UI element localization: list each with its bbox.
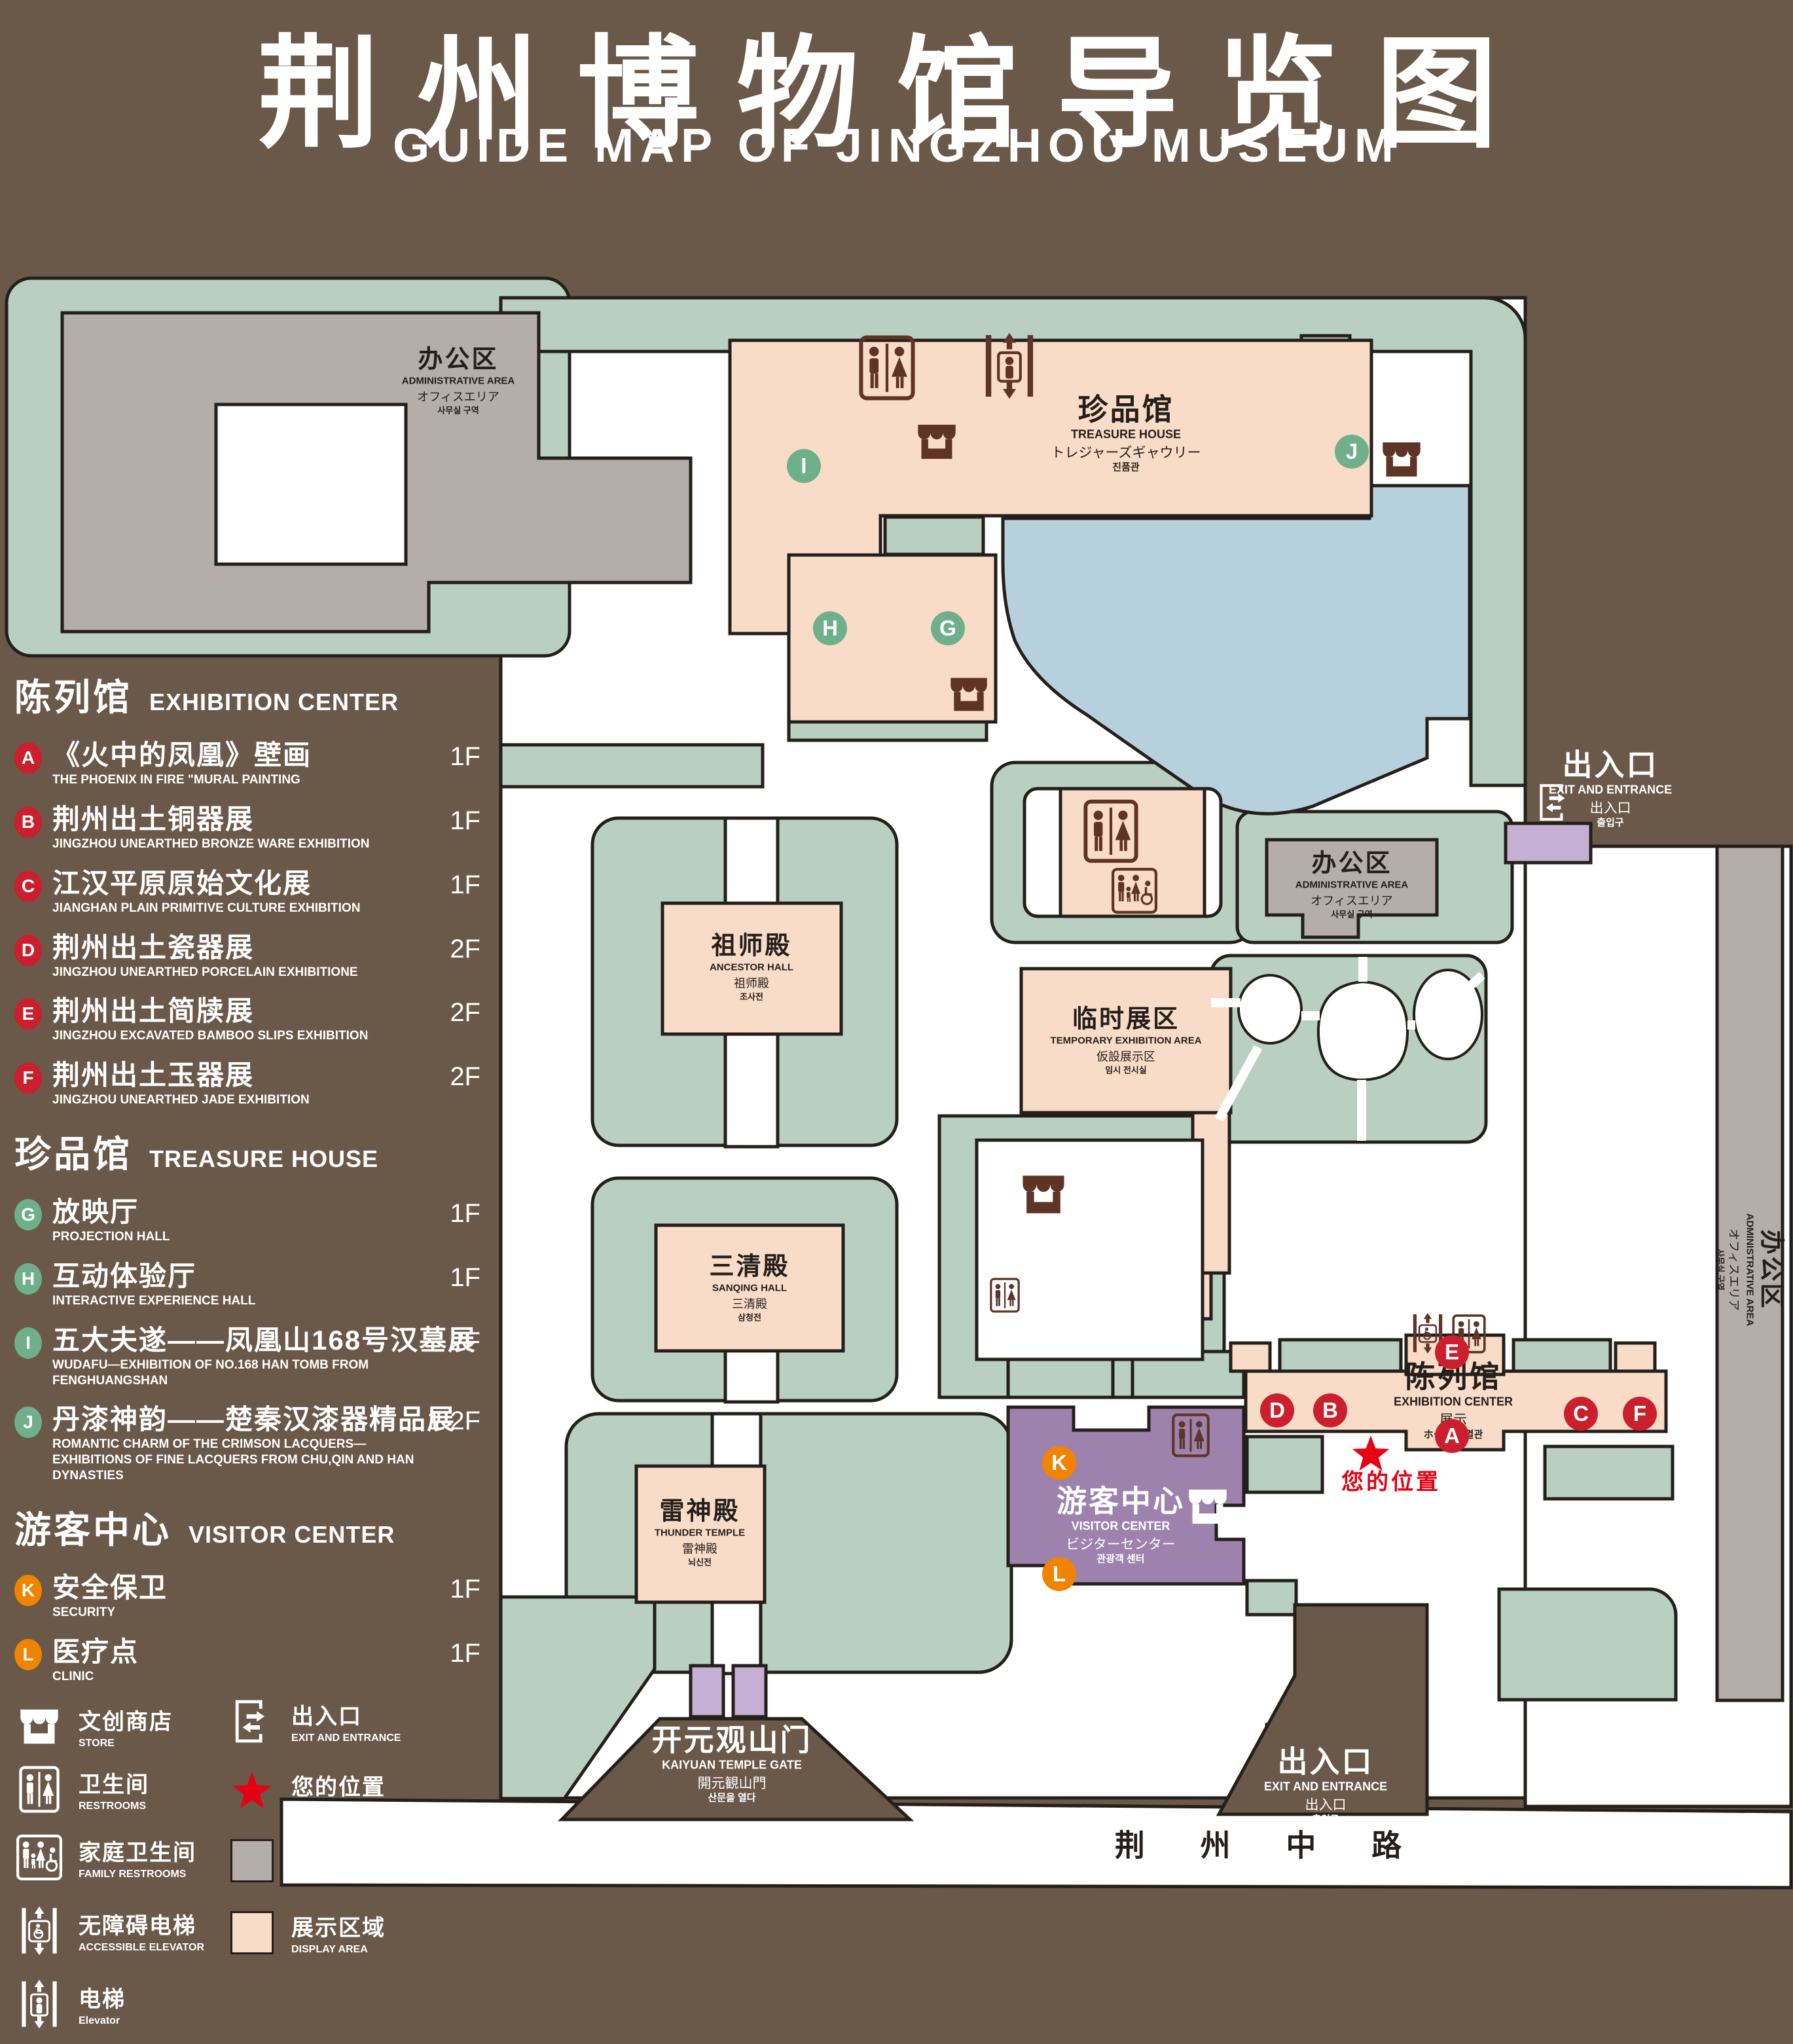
floor-G: 1F [450,1199,480,1228]
path-thunder-top [712,1414,761,1466]
legend-symbol-restrooms: 卫生间RESTROOMS [14,1766,149,1813]
legend-section-visitor-center: 游客中心VISITOR CENTER [14,1501,499,1554]
legend-symbol-exit: 出入口EXIT AND ENTRANCE [227,1698,401,1744]
legend: 陈列馆EXHIBITION CENTER A 《火中的凤凰》壁画THE PHOE… [14,651,499,2044]
restroom-icon [14,1766,64,1813]
family-restroom-icon [1112,868,1157,914]
legend-item-F: F 荆州出土玉器展JINGZHOU UNEARTHED JADE EXHIBIT… [14,1061,499,1108]
floor-I: 2F [450,1327,480,1357]
floor-A: 1F [450,742,480,772]
lawn-star-left [1247,1437,1322,1492]
path-thunder-bottom [712,1602,761,1674]
floor-E: 2F [450,998,480,1028]
label-road: 荆 州 中 路 [1115,1829,1425,1863]
floor-B: 1F [450,806,480,836]
path-sanqing-bottom [725,1351,778,1402]
badge-G: G [14,1199,42,1230]
legend-symbol-office-area: 办公区域OFFICE AREA [227,1838,386,1884]
lawn-band-bottom [501,745,763,787]
badge-F: F [14,1062,42,1094]
badge-J: J [14,1407,42,1438]
floor-D: 2F [450,935,480,964]
legend-item-K: K 安全保卫SECURITY 1F [14,1573,499,1621]
map-marker-H: H [813,611,847,645]
display-swatch [227,1911,277,1954]
exit-icon [227,1698,277,1744]
restroom-icon [1172,1412,1210,1458]
lawn-below-gh [789,722,987,740]
floor-F: 2F [450,1062,480,1092]
legend-item-H: H 互动体验厅INTERACTIVE EXPERIENCE HALL 1F [14,1262,499,1309]
restroom-icon [859,334,915,402]
legend-section-treasure-house: 珍品馆TREASURE HOUSE [14,1125,499,1178]
gate-pillar-right [733,1666,766,1717]
legend-symbol-elevator: 电梯Elevator [14,1979,126,2030]
restroom-icon [990,1276,1020,1314]
map-marker-E: E [1435,1335,1469,1369]
label-ancestor-hall: 祖师殿ANCESTOR HALL 祖师殿조사전 [710,933,793,1001]
map-marker-L: L [1042,1557,1076,1591]
label-exit-bottom-right: 出入口EXIT AND ENTRANCE 出入口출입구 [1264,1746,1387,1826]
badge-D: D [14,935,42,966]
elevator-icon [14,1979,64,2030]
map-marker-K: K [1042,1446,1076,1480]
location-star-icon [227,1771,277,1813]
store-icon [1380,440,1423,479]
label-admin-top-left: 办公区ADMINISTRATIVE AREA オフィスエリア사무실 구역 [402,346,515,415]
floor-L: 1F [450,1639,480,1668]
store-icon [915,422,958,461]
accessible-elevator-icon [14,1905,64,1956]
restroom-icon [1083,798,1138,864]
legend-item-E: E 荆州出土简牍展JINGZHOU EXCAVATED BAMBOO SLIPS… [14,997,499,1044]
building-exhibition-stub-left [1231,1343,1270,1371]
legend-item-I: I 五大夫遂——凤凰山168号汉墓展WUDAFU—EXHIBITION OF N… [14,1326,499,1389]
courtyard-admin-top-left [216,404,406,564]
legend-item-B: B 荆州出土铜器展JINGZHOU UNEARTHED BRONZE WARE … [14,805,499,852]
map-marker-B: B [1313,1393,1347,1427]
pond-center [1318,982,1407,1080]
badge-H: H [14,1263,42,1295]
lawn-right-lower [1499,1589,1676,1700]
badge-E: E [14,998,42,1030]
legend-symbol-family-restrooms: 家庭卫生间FAMILY RESTROOMS [14,1835,196,1880]
path-ancestor-bottom [725,1034,778,1147]
legend-symbols: 文创商店STORE 出入口EXIT AND ENTRANCE 卫生间RESTRO… [14,1704,499,2044]
elevator-icon [982,331,1037,401]
map-marker-C: C [1564,1397,1598,1431]
lawn-treasure-slot [885,517,983,554]
lawn-exhibition-notch-right [1513,1340,1610,1371]
floor-J: 1-2F [427,1407,480,1436]
family-restroom-icon [14,1835,64,1880]
your-location-star-icon [1350,1435,1391,1475]
legend-symbol-store: 文创商店STORE [14,1704,173,1749]
office-swatch [227,1839,277,1882]
badge-C: C [14,870,42,902]
store-icon [1186,1487,1229,1526]
store-icon [1020,1173,1067,1216]
floor-C: 1F [450,870,480,900]
legend-symbol-accessible-elevator: 无障碍电梯ACCESSIBLE ELEVATOR [14,1905,204,1956]
map-marker-J: J [1335,435,1369,469]
store-icon [14,1707,64,1746]
legend-item-A: A 《火中的凤凰》壁画THE PHOENIX IN FIRE "MURAL PA… [14,741,499,788]
label-sanqing-hall: 三清殿SANQING HALL 三清殿삼청전 [709,1253,789,1322]
legend-item-G: G 放映厅PROJECTION HALL 1F [14,1198,499,1245]
legend-item-L: L 医疗点CLINIC 1F [14,1638,499,1685]
label-thunder-temple: 雷神殿THUNDER TEMPLE 雷神殿뇌신전 [655,1498,745,1567]
road-jingzhou-middle [281,1799,1791,1888]
map-marker-A: A [1435,1419,1469,1453]
legend-symbol-your-location: 您的位置YOUR LOCATION [227,1769,386,1815]
label-admin-middle: 办公区ADMINISTRATIVE AREA オフィスエリア사무실 구역 [1295,850,1409,919]
map-marker-I: I [787,449,821,483]
label-visitor-center: 游客中心VISITOR CENTER ビジターセンター관광객 센터 [1057,1485,1185,1566]
map-marker-D: D [1260,1393,1294,1427]
label-kaiyuan-gate: 开元观山门KAIYUAN TEMPLE GATE 開元観山門산문을 열다 [652,1724,812,1804]
badge-K: K [14,1575,42,1606]
legend-symbol-display-area: 展示区域DISPLAY AREA [227,1910,386,1956]
legend-item-J: J 丹漆神韵——楚秦汉漆器精品展ROMANTIC CHARM OF THE CR… [14,1405,499,1483]
courtyard-temporary [977,1140,1203,1359]
floor-K: 1F [450,1575,480,1604]
building-exhibition-stub-right [1616,1343,1655,1371]
map-marker-G: G [931,611,965,645]
map-marker-F: F [1623,1397,1657,1431]
legend-section-exhibition-center: 陈列馆EXHIBITION CENTER [14,668,499,721]
badge-I: I [14,1327,42,1359]
legend-item-C: C 江汉平原原始文化展JIANGHAN PLAIN PRIMITIVE CULT… [14,869,499,916]
lawn-exhibition-notch-left [1280,1340,1401,1371]
path-ancestor-top [725,818,778,903]
gate-pillar-left [691,1666,723,1717]
badge-B: B [14,806,42,838]
legend-item-D: D 荆州出土瓷器展JINGZHOU UNEARTHED PORCELAIN EX… [14,933,499,980]
floor-H: 1F [450,1263,480,1293]
lawn-star-left2 [1247,1581,1296,1615]
badge-L: L [14,1639,42,1670]
label-treasure-house: 珍品馆TREASURE HOUSE トレジャーズギャウリー진품관 [1051,393,1201,474]
gate-top-right [1506,823,1591,863]
pond-left [1239,975,1301,1043]
label-temporary-exhibition: 临时展区TEMPORARY EXHIBITION AREA 仮設展示区임시 전시… [1050,1006,1201,1075]
label-admin-right: 办公区ADMINISTRATIVE AREA オフィスエリア사무실 구역 [1715,1213,1784,1327]
lawn-right-upper [1545,1446,1673,1499]
store-icon [948,675,990,713]
exit-icon [1537,783,1571,822]
badge-A: A [14,742,42,774]
